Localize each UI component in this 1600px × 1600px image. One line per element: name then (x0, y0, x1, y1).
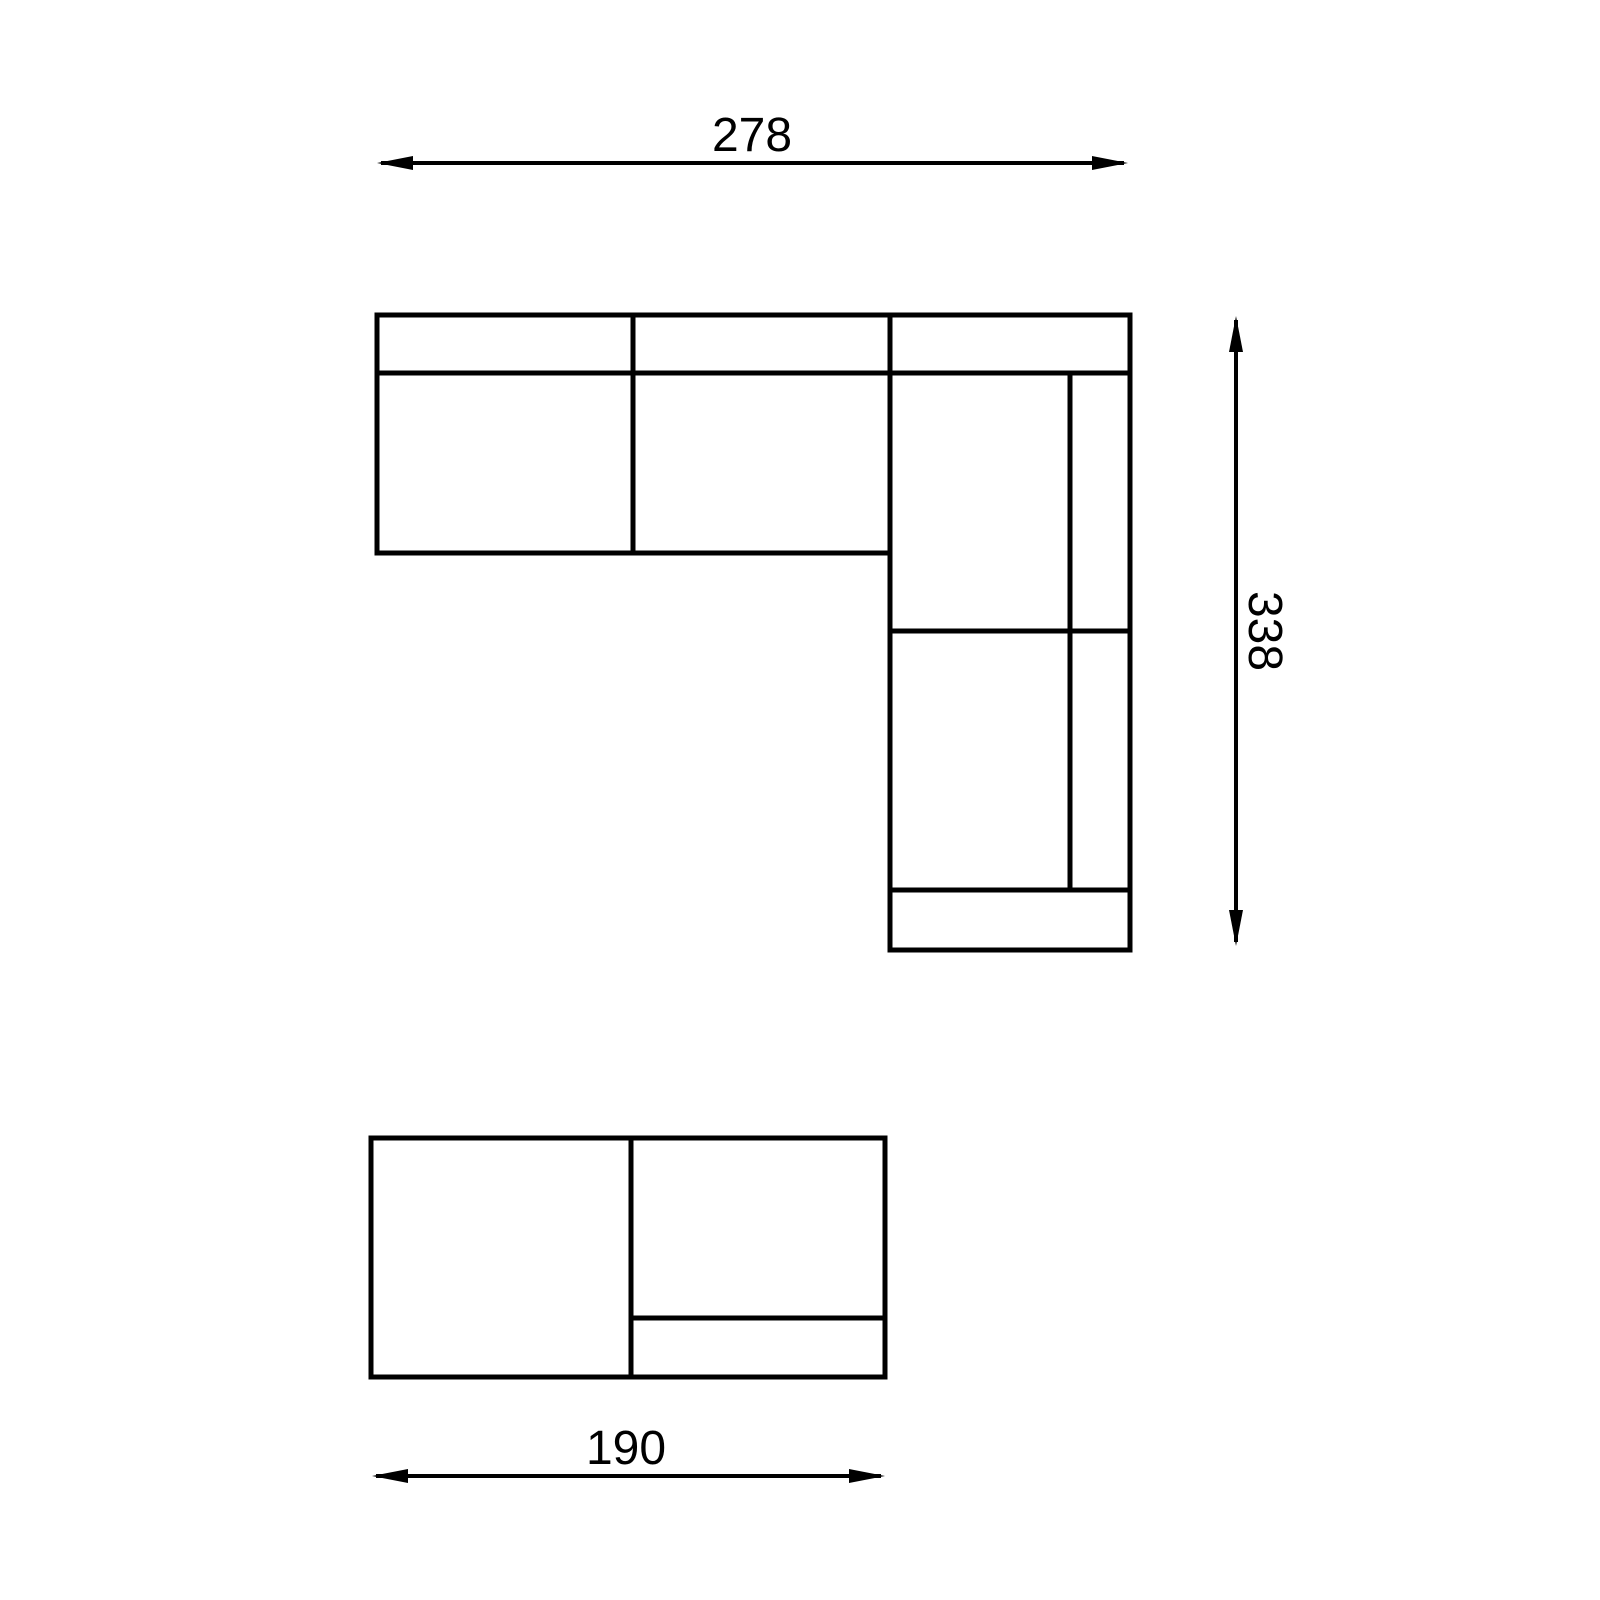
dimension-top-arrowhead-left (377, 156, 413, 170)
technical-drawing-canvas: 278 338 190 (0, 0, 1600, 1600)
sofa-plan-svg (0, 0, 1600, 1600)
dimension-bottom-arrowhead-right (849, 1469, 885, 1483)
two-seater-outline (371, 1138, 885, 1377)
dimension-label-bottom-width: 190 (586, 1425, 666, 1473)
dimension-label-top-width: 278 (712, 112, 792, 160)
two-seater-top-view (371, 1138, 885, 1377)
dimension-top-arrowhead-right (1092, 156, 1128, 170)
dimension-label-right-height: 338 (1240, 591, 1288, 671)
dimension-right-arrowhead-bottom (1229, 910, 1243, 946)
corner-sofa-top-view (377, 315, 1130, 950)
dimension-bottom-arrowhead-left (372, 1469, 408, 1483)
dimension-right-arrowhead-top (1229, 316, 1243, 352)
